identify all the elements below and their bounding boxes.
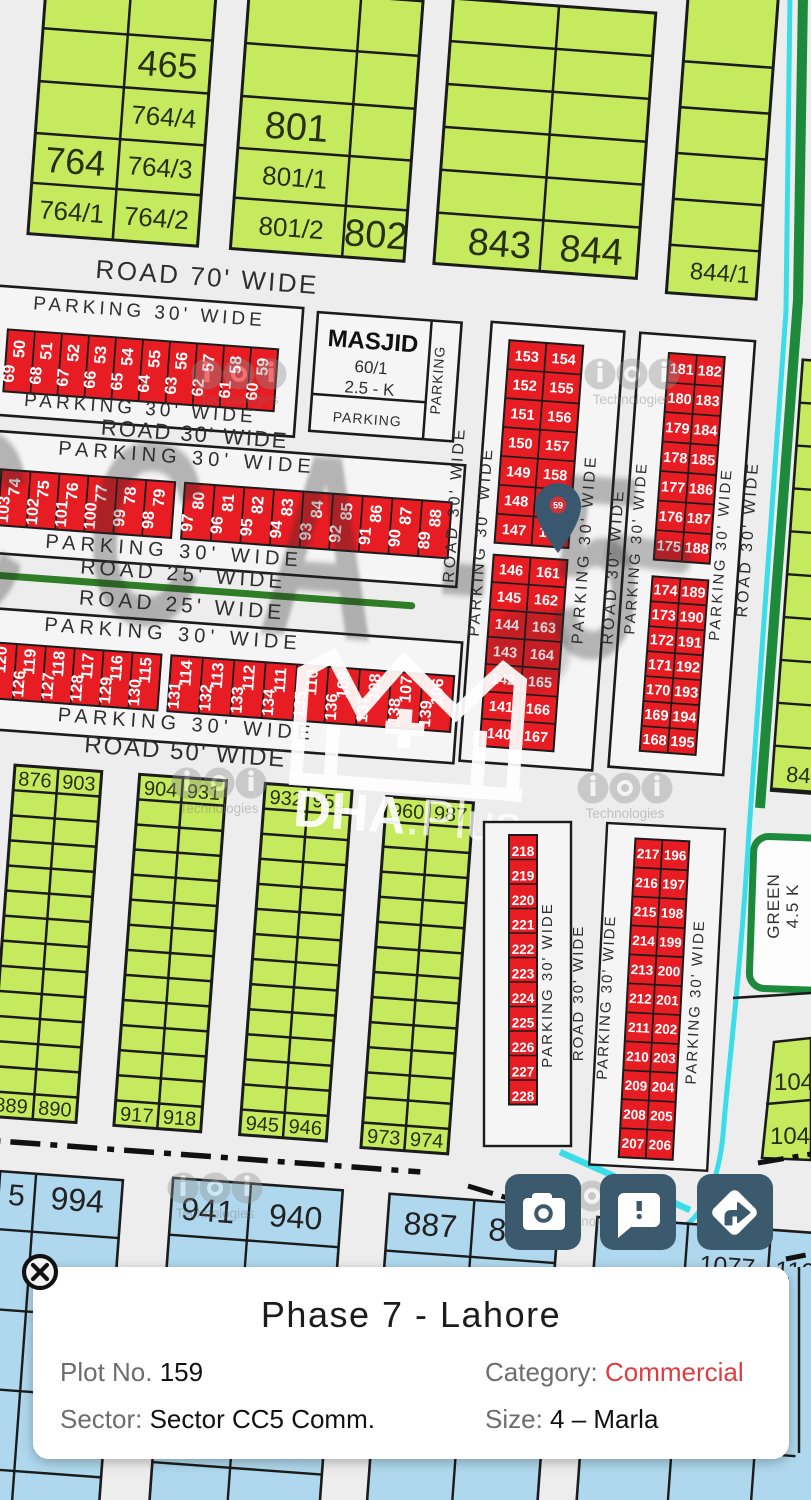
svg-text:202: 202	[654, 1021, 677, 1037]
svg-text:224: 224	[512, 991, 535, 1006]
svg-text:56: 56	[172, 351, 191, 370]
svg-text:126: 126	[9, 670, 29, 698]
svg-text:215: 215	[633, 904, 657, 920]
svg-text:127: 127	[38, 672, 58, 700]
svg-text:2.5 - K: 2.5 - K	[344, 377, 396, 400]
svg-text:203: 203	[653, 1050, 677, 1066]
svg-text:60/1: 60/1	[354, 357, 388, 378]
svg-text:4.5 K: 4.5 K	[783, 884, 802, 929]
svg-text:130: 130	[125, 678, 145, 706]
svg-text:153: 153	[514, 348, 539, 366]
svg-text:801: 801	[263, 104, 329, 151]
svg-text:50: 50	[10, 339, 29, 358]
svg-text:Phase 7 - Lahore: Phase 7 - Lahore	[261, 1294, 561, 1335]
svg-text:844: 844	[558, 228, 624, 275]
svg-text:Technologies: Technologies	[593, 392, 672, 407]
svg-text:104: 104	[774, 1069, 811, 1096]
svg-text:209: 209	[624, 1078, 647, 1094]
svg-text:136: 136	[322, 693, 342, 721]
svg-text:207: 207	[621, 1136, 644, 1152]
svg-text:212: 212	[629, 991, 652, 1007]
svg-text:104: 104	[770, 1123, 810, 1150]
svg-text:ROAD 30' WIDE: ROAD 30' WIDE	[570, 925, 587, 1061]
svg-text:223: 223	[512, 967, 535, 982]
svg-text:217: 217	[636, 846, 659, 862]
svg-text:764/4: 764/4	[130, 99, 197, 134]
svg-text:182: 182	[697, 363, 722, 381]
svg-text:52: 52	[64, 343, 83, 362]
svg-text:844/1: 844/1	[689, 258, 751, 289]
svg-text:54: 54	[118, 347, 137, 366]
svg-text:994: 994	[49, 1180, 105, 1220]
svg-text:84: 84	[785, 762, 811, 789]
svg-text:974: 974	[409, 1129, 444, 1153]
svg-text:210: 210	[626, 1049, 649, 1065]
svg-text:206: 206	[648, 1137, 672, 1153]
svg-text:155: 155	[549, 380, 574, 398]
svg-text:764: 764	[44, 139, 107, 184]
svg-text:152: 152	[512, 377, 537, 395]
svg-text:196: 196	[663, 847, 687, 863]
svg-text:218: 218	[512, 844, 535, 859]
svg-text:Technologies: Technologies	[176, 1206, 255, 1221]
svg-text:465: 465	[136, 42, 199, 87]
svg-text:Technologies: Technologies	[200, 392, 279, 407]
svg-text:226: 226	[512, 1040, 535, 1055]
svg-text:140: 140	[486, 726, 511, 744]
svg-text:51: 51	[37, 341, 56, 360]
svg-text:Category: Commercial: Category: Commercial	[485, 1357, 744, 1387]
svg-text:219: 219	[512, 869, 535, 884]
svg-text:887: 887	[403, 1205, 459, 1245]
svg-text:211: 211	[628, 1020, 651, 1036]
svg-text:227: 227	[512, 1065, 535, 1080]
svg-text:132: 132	[196, 684, 216, 712]
svg-text:764/3: 764/3	[127, 150, 194, 185]
svg-text:133: 133	[227, 686, 247, 714]
svg-text:CCA-5: CCA-5	[0, 372, 711, 721]
svg-text:134: 134	[259, 688, 279, 716]
svg-text:59: 59	[553, 501, 563, 511]
svg-text:801/2: 801/2	[258, 210, 325, 245]
svg-text:183: 183	[695, 393, 720, 411]
svg-text:PARKING 30' WIDE: PARKING 30' WIDE	[539, 902, 556, 1067]
svg-text:216: 216	[635, 875, 659, 891]
svg-text:214: 214	[632, 933, 656, 949]
svg-text:876: 876	[17, 768, 52, 792]
svg-text:55: 55	[145, 349, 164, 368]
svg-text:801/1: 801/1	[261, 160, 328, 195]
svg-text:208: 208	[623, 1107, 647, 1123]
svg-text:917: 917	[119, 1103, 154, 1127]
svg-text:131: 131	[165, 681, 185, 709]
svg-text:222: 222	[512, 942, 535, 957]
svg-text:129: 129	[96, 676, 116, 704]
svg-text:764/1: 764/1	[38, 194, 105, 229]
svg-text:Technologies: Technologies	[586, 806, 665, 821]
svg-text:843: 843	[466, 221, 532, 268]
svg-text:221: 221	[512, 918, 535, 933]
svg-text:205: 205	[650, 1108, 674, 1124]
svg-text:200: 200	[657, 963, 680, 979]
svg-text:Plot No. 159: Plot No. 159	[60, 1357, 203, 1387]
svg-text:946: 946	[288, 1116, 323, 1140]
svg-text:GREEN: GREEN	[764, 873, 783, 938]
svg-text:918: 918	[162, 1107, 197, 1131]
svg-text:Sector: Sector CC5 Comm.: Sector: Sector CC5 Comm.	[60, 1404, 375, 1434]
svg-text:945: 945	[245, 1113, 280, 1137]
svg-text:764/2: 764/2	[123, 201, 190, 236]
svg-text:154: 154	[551, 351, 576, 369]
svg-text:940: 940	[268, 1197, 324, 1237]
svg-text:167: 167	[523, 729, 548, 747]
svg-text:198: 198	[660, 905, 684, 921]
svg-text:228: 228	[512, 1089, 535, 1104]
svg-text:890: 890	[37, 1097, 72, 1121]
svg-text:Technologies: Technologies	[180, 801, 259, 816]
svg-text:Size: 4 – Marla: Size: 4 – Marla	[485, 1404, 659, 1434]
svg-text:213: 213	[630, 962, 654, 978]
svg-text:225: 225	[512, 1016, 535, 1031]
svg-text:220: 220	[512, 893, 535, 908]
svg-text:5: 5	[7, 1179, 26, 1213]
svg-text:199: 199	[659, 934, 682, 950]
svg-text:201: 201	[656, 992, 680, 1008]
svg-text:168: 168	[642, 732, 667, 750]
svg-text:128: 128	[67, 674, 87, 702]
svg-text:204: 204	[651, 1079, 675, 1095]
svg-text:195: 195	[670, 734, 695, 752]
svg-text:802: 802	[343, 212, 409, 259]
svg-text:973: 973	[366, 1126, 401, 1150]
svg-text:903: 903	[61, 771, 96, 795]
svg-text:53: 53	[91, 345, 110, 364]
svg-text:889: 889	[0, 1094, 28, 1118]
svg-text:197: 197	[662, 876, 685, 892]
